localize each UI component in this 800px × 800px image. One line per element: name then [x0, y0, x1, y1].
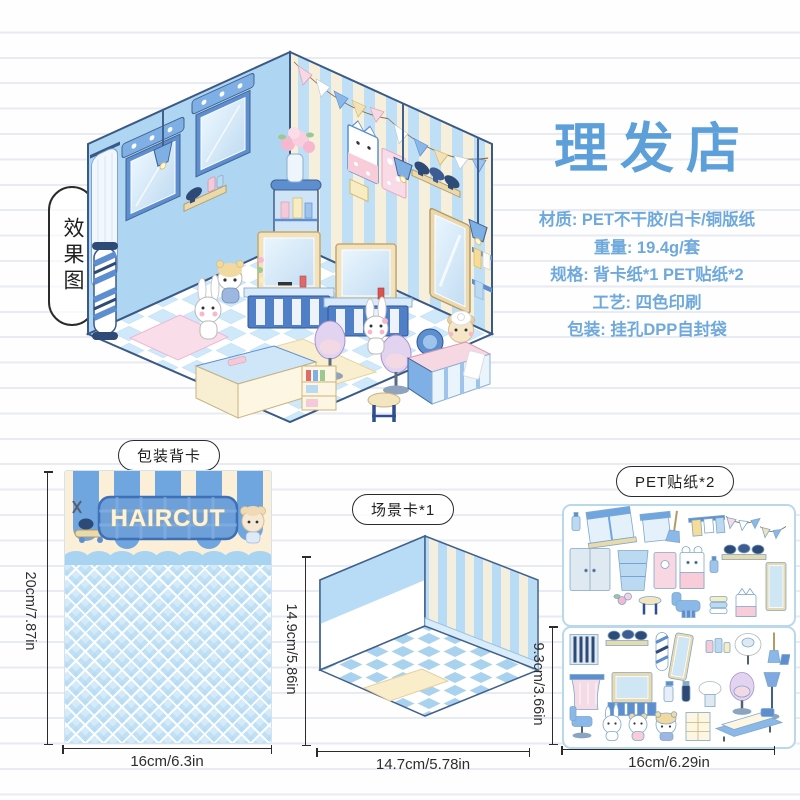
spec-weight: 重量: 19.4g/套: [498, 235, 796, 263]
pack-height-dim: 20cm/7.87in: [22, 556, 38, 666]
sticker-bear-character-icon: [629, 714, 647, 741]
sticker-pink-cabinet-icon: [654, 553, 676, 589]
product-title: 理发店: [498, 104, 796, 183]
scene-card: [312, 528, 546, 748]
sticker-spray-bottle-icon: [572, 513, 580, 531]
sticker-hairdryer-shelf-icon: [722, 544, 766, 560]
sticker-plant-icon: [614, 593, 632, 605]
scene-width-dim: 14.7cm/5.78in: [318, 756, 528, 773]
pack-width-dim-line: [62, 748, 272, 749]
sticker-hamster-character-icon: [655, 712, 677, 741]
barber-pole-icon: [92, 242, 118, 340]
product-detail-page: 效果图: [0, 0, 800, 800]
spec-material: 材质: PET不干胶/白卡/铜版纸: [498, 207, 796, 235]
scene-height-dim-line: [305, 556, 306, 746]
scallop-edge: [65, 551, 271, 565]
salon-chair-icon: [381, 335, 411, 395]
bear-character-icon: [448, 311, 475, 343]
sticker-double-door-icon: [570, 549, 610, 591]
sticker-perfume-bottle-icon: [710, 557, 718, 573]
banner-plaid: HAIRCUT: [99, 497, 237, 539]
sticker-wall-basin-icon: [699, 682, 721, 707]
sticker-bunny-cabinet-icon: [680, 547, 704, 589]
stool-icon: [368, 393, 400, 422]
sticker-towel-stack-icon: [710, 597, 727, 614]
wall-mirror-icon: [430, 208, 470, 314]
sticker-wash-basin-chair-icon: [735, 634, 761, 665]
stickers-height-dim: 9.3cm/3.66in: [530, 629, 546, 739]
sticker-broom-dustpan-icon: [768, 633, 790, 665]
vanity-station-icon: [244, 232, 334, 328]
product-info-panel: 理发店 材质: PET不干胶/白卡/铜版纸 重量: 19.4g/套 规格: 背卡…: [498, 104, 796, 345]
haircut-banner-text: HAIRCUT: [111, 505, 226, 532]
sticker-wall-mirror-icon: [766, 563, 786, 611]
bookshelf-icon: [302, 366, 336, 410]
sticker-double-window-icon: [584, 506, 637, 548]
gingham-body: [65, 565, 271, 743]
scene-width-dim-line: [316, 751, 530, 752]
pack-height-dim-line: [47, 471, 48, 745]
sticker-stool-icon: [639, 597, 661, 615]
sticker-sheet-1: [562, 504, 796, 627]
stickers-width-dim-line: [561, 749, 775, 750]
sticker-pump-bottle-icon: [664, 682, 673, 702]
sticker-curtain-icon: [570, 675, 604, 710]
sticker-towel-bar-icon: [689, 515, 726, 536]
scene-card-label: 场景卡*1: [352, 494, 454, 525]
sticker-sheet-2: [562, 626, 796, 749]
barbershop-room-illustration: [78, 36, 502, 430]
spec-size: 规格: 背卡纸*1 PET贴纸*2: [498, 262, 796, 290]
sticker-cat-poster-icon: [736, 589, 756, 617]
sticker-cosmetics-icon: [706, 639, 730, 653]
sticker-open-cabinet-icon: [686, 713, 710, 741]
sticker-barber-pole-icon: [656, 633, 668, 671]
stickers-height-dim-line: [552, 626, 553, 745]
sticker-salon-chair-icon: [730, 673, 754, 715]
sticker-pennant-banner-yellow-icon: [760, 527, 786, 539]
sticker-office-chair-icon: [570, 707, 592, 739]
stickers-label: PET贴纸*2: [616, 466, 734, 497]
stickers-width-dim: 16cm/6.29in: [563, 754, 775, 771]
sticker-sheet-2-art: [564, 628, 790, 743]
sticker-sheet-1-art: [564, 506, 790, 621]
pack-width-dim: 16cm/6.3in: [64, 753, 270, 770]
packaging-card-label: 包装背卡: [118, 440, 220, 471]
sticker-blinds-window-icon: [570, 635, 598, 665]
scene-height-dim: 14.9cm/5.86in: [283, 594, 299, 704]
sticker-hair-clipper-icon: [682, 682, 690, 702]
haircut-header: HAIRCUT: [65, 471, 271, 565]
sticker-barber-chair-icon: [672, 593, 700, 618]
sticker-standing-mirror-icon: [668, 633, 694, 681]
sticker-pennant-banner-pink-icon: [726, 517, 760, 531]
packaging-back-card: HAIRCUT: [64, 470, 272, 744]
spec-package: 包装: 挂孔DPP自封袋: [498, 317, 796, 345]
sticker-hairdryer-shelf-icon: [606, 630, 648, 646]
spec-craft: 工艺: 四色印刷: [498, 290, 796, 318]
sticker-corner-shelf-icon: [618, 551, 648, 591]
